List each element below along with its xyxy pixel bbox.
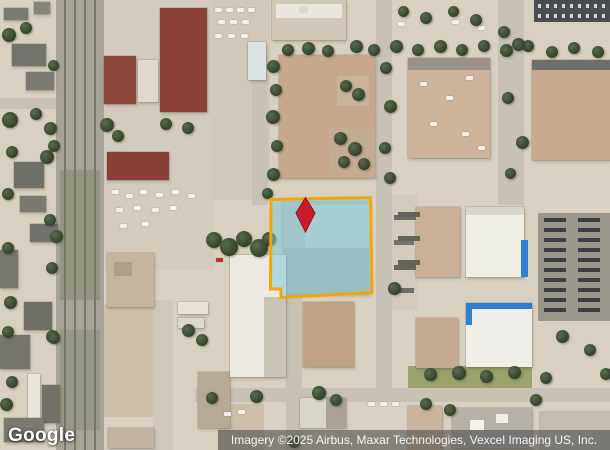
google-logo[interactable]: Google (8, 425, 75, 447)
map-canvas[interactable]: Google Imagery ©2025 Airbus, Maxar Techn… (0, 0, 610, 450)
map-overlay-layer (0, 0, 610, 450)
attribution-text: Imagery ©2025 Airbus, Maxar Technologies… (231, 433, 597, 447)
parcel-overlay[interactable] (271, 198, 373, 298)
attribution-bar: Imagery ©2025 Airbus, Maxar Technologies… (218, 430, 610, 450)
